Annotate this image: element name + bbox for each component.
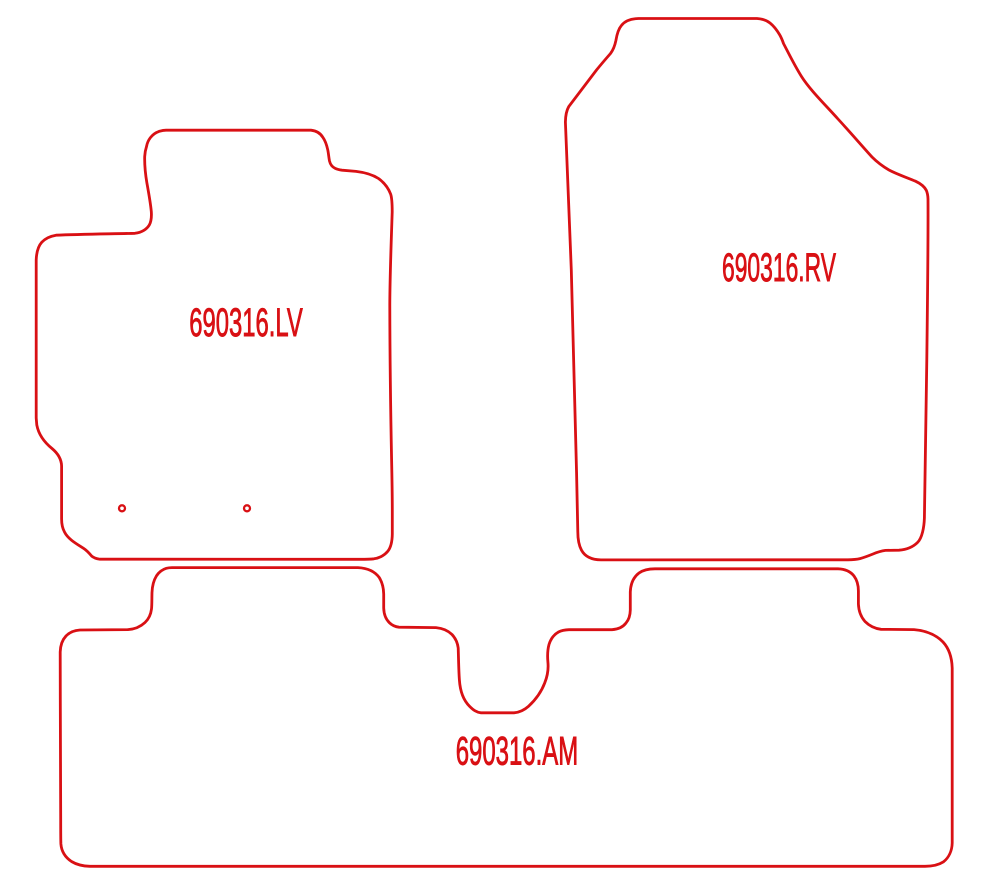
svg-text:690316.LV: 690316.LV bbox=[189, 301, 303, 345]
svg-text:690316.AM: 690316.AM bbox=[456, 729, 579, 773]
svg-text:690316.RV: 690316.RV bbox=[722, 246, 836, 290]
